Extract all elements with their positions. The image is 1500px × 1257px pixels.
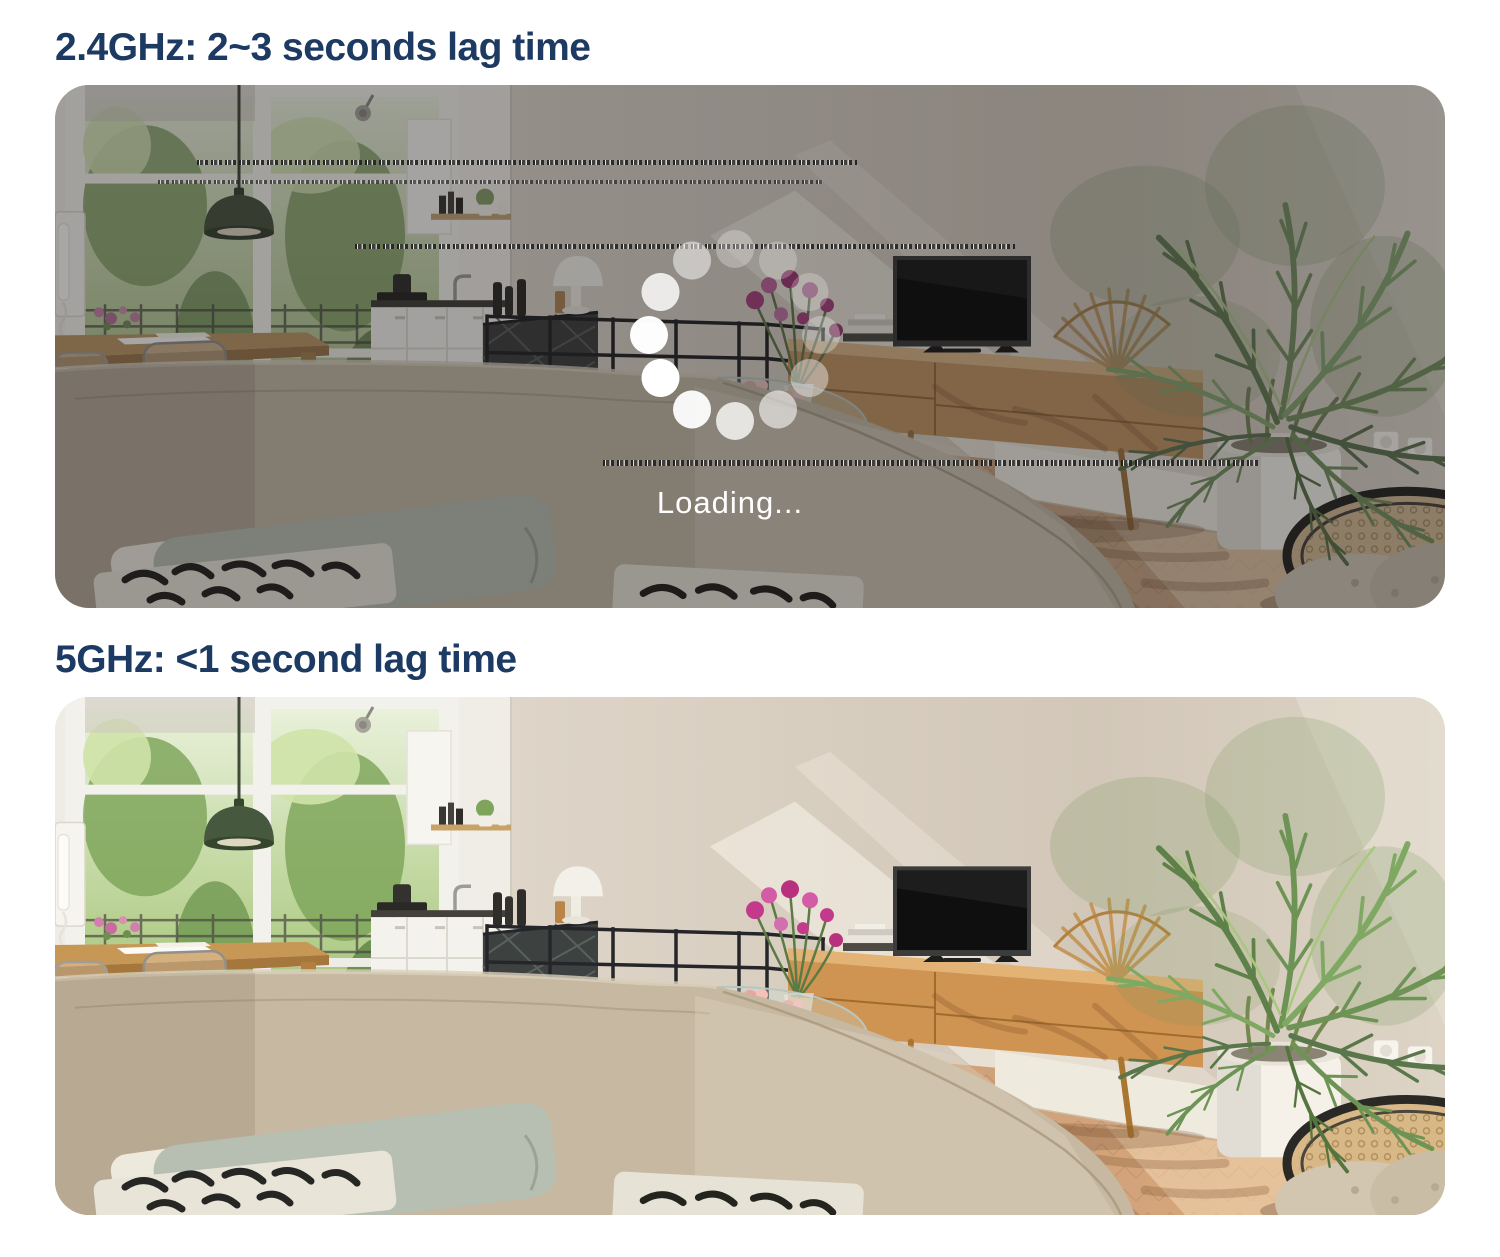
glitch-artifact [197, 160, 857, 165]
wifi-lag-comparison: 2.4GHz: 2~3 seconds lag time Loading... … [0, 0, 1500, 1215]
heading-5ghz: 5GHz: <1 second lag time [55, 638, 1445, 683]
loading-label: Loading... [657, 485, 803, 521]
panel-5ghz: 5GHz: <1 second lag time [55, 638, 1445, 1215]
heading-24ghz: 2.4GHz: 2~3 seconds lag time [55, 26, 1445, 71]
panel-24ghz: 2.4GHz: 2~3 seconds lag time Loading... [55, 26, 1445, 608]
glitch-artifact [603, 460, 1261, 466]
camera-view-5ghz [55, 697, 1445, 1215]
living-room-scene [55, 697, 1445, 1215]
camera-view-24ghz: Loading... [55, 85, 1445, 608]
glitch-artifact [158, 180, 823, 184]
